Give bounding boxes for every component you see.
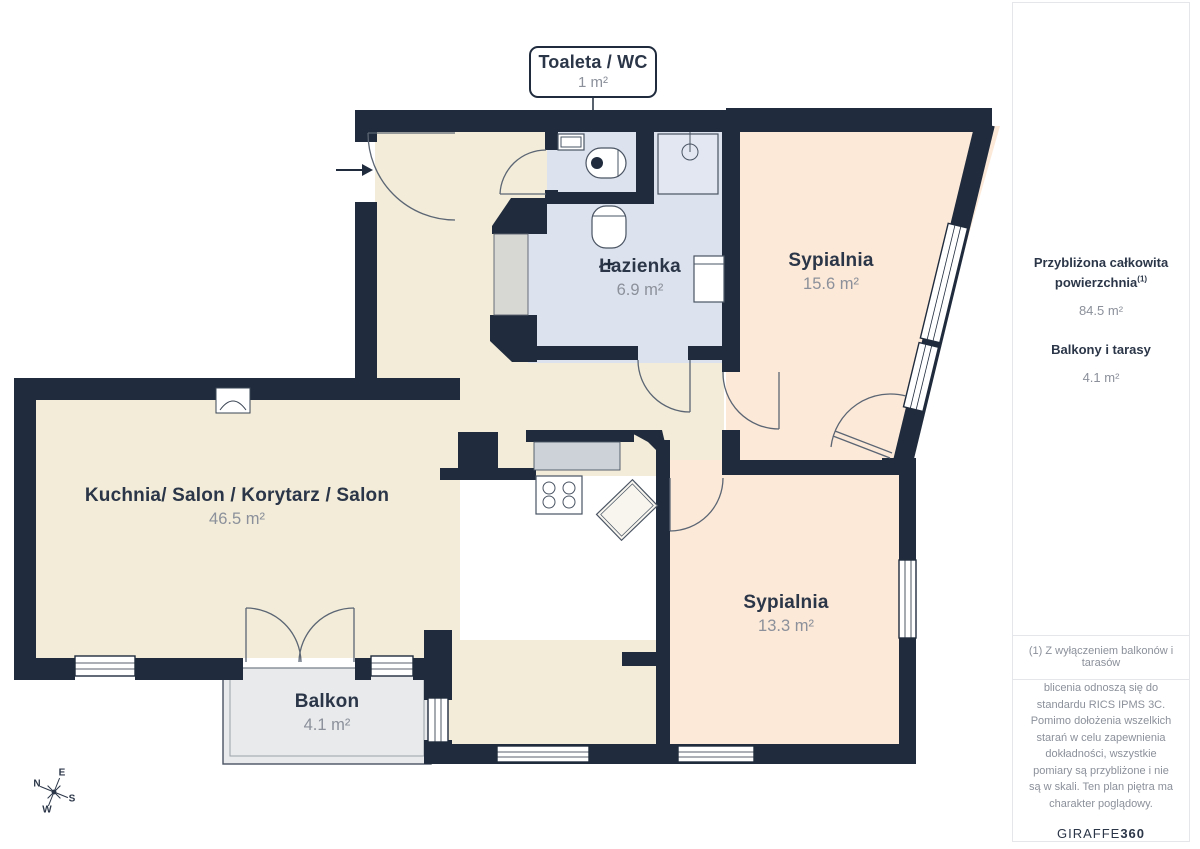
balconies-value: 4.1 m² bbox=[1083, 370, 1120, 385]
compass-n: N bbox=[33, 779, 40, 790]
area-summary: Przybliżona całkowita powierzchnia(1) 84… bbox=[1013, 3, 1189, 635]
total-area-label: Przybliżona całkowita powierzchnia(1) bbox=[1034, 253, 1168, 293]
balconies-label: Balkony i tarasy bbox=[1051, 340, 1151, 360]
compass-star-icon bbox=[10, 752, 100, 832]
floor-plan-drawing bbox=[0, 0, 1010, 849]
total-area-value: 84.5 m² bbox=[1079, 303, 1123, 318]
room-label-lazienka: Łazienka 6.9 m² bbox=[599, 256, 681, 300]
giraffe360-logo: GIRAFFE360 bbox=[1057, 826, 1145, 841]
compass-w: W bbox=[42, 805, 51, 816]
callout-area: 1 m² bbox=[531, 74, 655, 91]
room-label-sypialnia-1: Sypialnia 15.6 m² bbox=[788, 250, 873, 294]
floorplan-page: Toaleta / WC 1 m² Łazienka 6.9 m² Sypial… bbox=[0, 0, 1200, 849]
summary-sidebar: Przybliżona całkowita powierzchnia(1) 84… bbox=[1012, 2, 1190, 842]
callout-title: Toaleta / WC bbox=[531, 52, 655, 73]
compass-rose: N E S W bbox=[10, 752, 100, 832]
disclaimer-text: blicenia odnoszą się do standardu RICS I… bbox=[1026, 680, 1176, 812]
room-label-kuchnia-salon: Kuchnia/ Salon / Korytarz / Salon 46.5 m… bbox=[85, 485, 389, 529]
floor-plan: Toaleta / WC 1 m² Łazienka 6.9 m² Sypial… bbox=[0, 0, 1010, 849]
footnote: (1) Z wyłączeniem balkonów i tarasów bbox=[1013, 635, 1189, 679]
room-label-sypialnia-2: Sypialnia 13.3 m² bbox=[743, 592, 828, 636]
disclaimer-section: blicenia odnoszą się do standardu RICS I… bbox=[1013, 679, 1189, 841]
compass-e: E bbox=[59, 768, 66, 779]
compass-s: S bbox=[69, 794, 76, 805]
room-label-balkon: Balkon 4.1 m² bbox=[295, 691, 360, 735]
entrance-arrow bbox=[336, 164, 373, 176]
room-callout-toaleta: Toaleta / WC 1 m² bbox=[529, 46, 657, 98]
